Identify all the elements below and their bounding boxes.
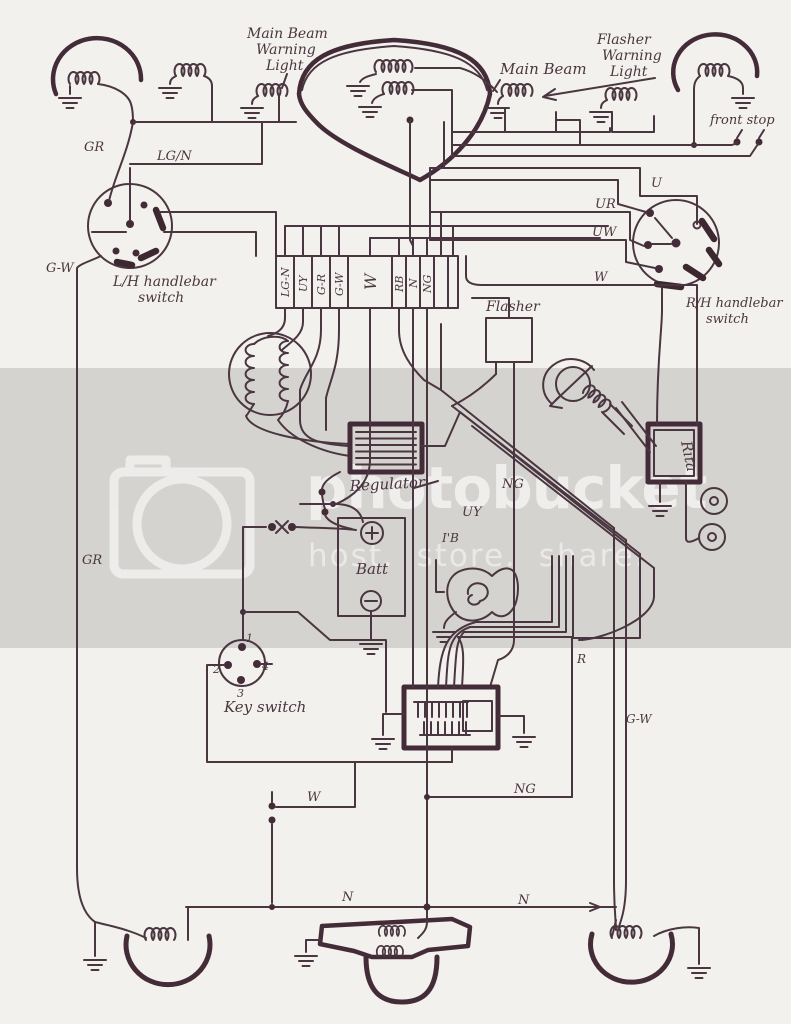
key-terminal-4: 4 [261, 660, 269, 673]
tail-lamp [295, 905, 470, 1002]
wire-label-uy-mid: UY [462, 505, 483, 520]
wire-label-n-right: N [517, 893, 530, 908]
rh-handlebar-switch: U UR UW W R/H handlebar switch [592, 176, 783, 327]
brake-light-switch: W [269, 762, 356, 903]
main-beam-label: Main Beam [499, 60, 587, 78]
rectifier-module [372, 687, 535, 762]
strip-cell-5: RB [393, 276, 406, 293]
lh-switch-label-2: switch [138, 290, 184, 306]
wiring-diagram: photobucket host. store. share. Main Bea… [0, 0, 791, 1024]
strip-cell-7: NG [421, 274, 434, 294]
wire-label-ur: UR [595, 197, 616, 212]
flasher-warning-label-1: Flasher [596, 32, 652, 48]
wire-label-ng-bottom: NG [513, 782, 536, 797]
wire-label-w-right: W [594, 270, 609, 285]
wire-label-gr-top: GR [84, 140, 104, 155]
key-switch-label: Key switch [223, 698, 306, 716]
strip-cell-4: W [361, 272, 380, 290]
key-terminal-1: 1 [246, 632, 253, 645]
rear-right-indicator-lamp [591, 920, 711, 982]
strip-cell-2: G-R [315, 274, 328, 295]
strip-cell-0: LG-N [279, 267, 292, 298]
main-beam-warning-label-1: Main Beam [246, 26, 328, 42]
main-beam-warning-label-2: Warning [256, 42, 316, 58]
wire-label-gr-left: GR [82, 553, 102, 568]
main-beam-warning-label-3: Light [265, 58, 304, 74]
wire-label-n-left: N [341, 890, 354, 905]
wire-label-rb-mid: I'B [441, 531, 459, 545]
wire-label-gw-right: G-W [626, 712, 653, 726]
wire-label-ng-mid: NG [501, 477, 524, 492]
lh-switch-label-1: L/H handlebar [112, 274, 217, 290]
rh-switch-label-1: R/H handlebar [685, 296, 783, 311]
strip-cell-1: UY [297, 274, 310, 292]
flasher-label: Flasher [485, 299, 541, 315]
flasher-warning-label-2: Warning [602, 48, 662, 64]
wire-label-lgn: LG/N [156, 149, 192, 164]
wire-label-w-bottom: W [307, 790, 322, 805]
wire-label-gw-left: G-W [46, 261, 75, 276]
rear-left-indicator-lamp [84, 907, 210, 985]
wire-label-u: U [651, 176, 663, 191]
front-right-indicator-lamp [673, 34, 757, 148]
front-stop-switch: front stop [709, 113, 775, 146]
flasher-warning-light: Flasher Warning Light [543, 32, 662, 132]
terminal-strip: LG-N UY G-R G-W W RB N NG [276, 256, 458, 308]
rh-switch-label-2: switch [706, 312, 749, 327]
strip-cell-6: N [407, 278, 420, 289]
main-beam-warning-light-left: Main Beam Warning Light [241, 26, 328, 122]
battery-label: Batt [355, 560, 389, 578]
front-stop-label: front stop [709, 113, 775, 128]
wire-label-r-mid: R [576, 652, 586, 666]
scanned-wiring-diagram-page: photobucket host. store. share. Main Bea… [0, 0, 791, 1024]
strip-cell-3: G-W [333, 271, 346, 296]
front-left-indicator-lamp [53, 38, 141, 125]
flasher-warning-label-3: Light [609, 64, 648, 80]
watermark-band: photobucket host. store. share. [0, 368, 791, 648]
pilot-light [159, 64, 212, 122]
